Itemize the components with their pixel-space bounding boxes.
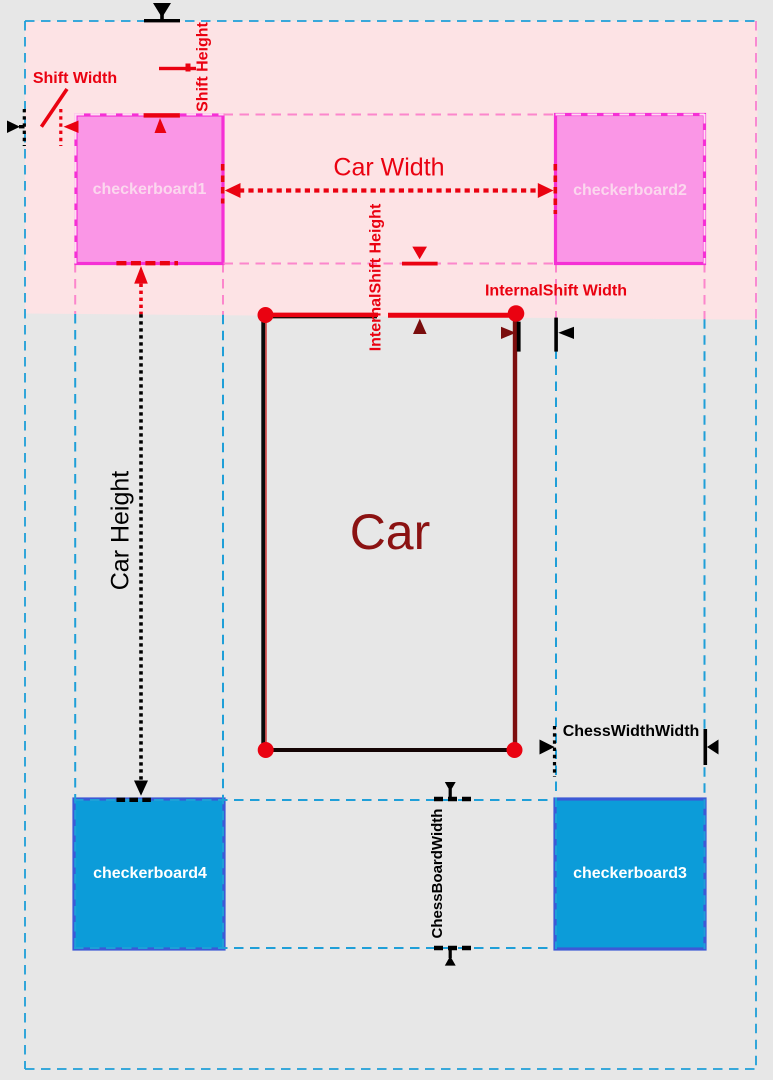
svg-text:ChessWidthWidth: ChessWidthWidth — [563, 723, 700, 740]
svg-text:Shift Height: Shift Height — [195, 21, 212, 111]
svg-text:InternalShift Width: InternalShift Width — [485, 283, 627, 300]
svg-text:checkerboard2: checkerboard2 — [573, 182, 687, 199]
svg-text:checkerboard3: checkerboard3 — [573, 865, 687, 882]
svg-text:Car: Car — [350, 504, 431, 560]
svg-text:ChessBoardWidth: ChessBoardWidth — [429, 809, 446, 939]
svg-text:checkerboard1: checkerboard1 — [93, 181, 207, 198]
svg-text:InternalShift Height: InternalShift Height — [368, 203, 385, 351]
svg-text:Shift Width: Shift Width — [33, 70, 117, 87]
svg-text:Car Width: Car Width — [333, 154, 444, 182]
svg-text:checkerboard4: checkerboard4 — [93, 865, 207, 882]
svg-text:Car Height: Car Height — [107, 471, 135, 591]
